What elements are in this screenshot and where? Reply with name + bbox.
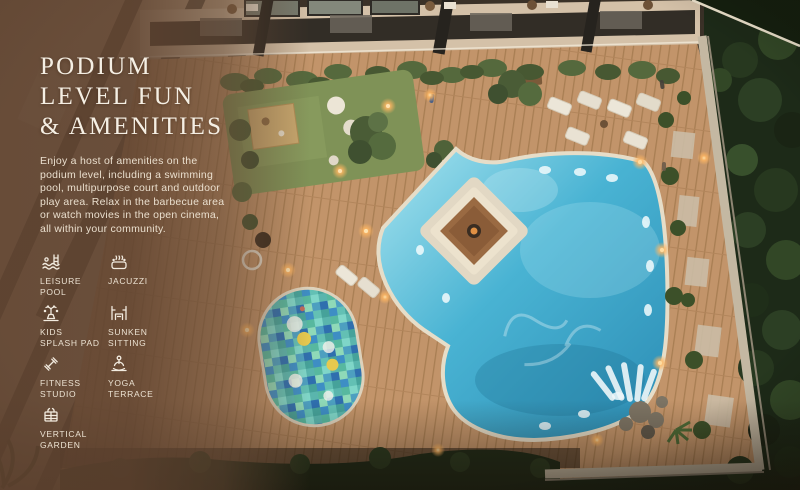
amenity-sunken-sitting: SUNKEN SITTING — [108, 302, 176, 349]
amenity-label: LEISURE POOL — [40, 276, 100, 298]
amenity-label: JACUZZI — [108, 276, 168, 287]
sunken-sitting-icon — [108, 302, 130, 324]
amenity-label: KIDS SPLASH PAD — [40, 327, 100, 349]
yoga-terrace-icon — [108, 353, 130, 375]
hero-content: PODIUM LEVEL FUN & AMENITIES Enjoy a hos… — [40, 52, 260, 451]
amenity-label: YOGA TERRACE — [108, 378, 168, 400]
kids-splash-pad-icon — [40, 302, 62, 324]
title-line-3: & AMENITIES — [40, 112, 260, 142]
amenity-jacuzzi: JACUZZI — [108, 251, 176, 298]
amenity-label: VERTICAL GARDEN — [40, 429, 100, 451]
page-title: PODIUM LEVEL FUN & AMENITIES — [40, 52, 260, 142]
amenity-label: SUNKEN SITTING — [108, 327, 168, 349]
title-line-1: PODIUM — [40, 52, 260, 82]
amenity-label: FITNESS STUDIO — [40, 378, 100, 400]
hero-description: Enjoy a host of amenities on the podium … — [40, 155, 225, 236]
amenity-fitness-studio: FITNESS STUDIO — [40, 353, 108, 400]
fitness-studio-icon — [40, 353, 62, 375]
vertical-garden-icon — [40, 404, 62, 426]
amenities-grid: LEISURE POOL JACUZZI — [40, 251, 260, 451]
amenity-yoga-terrace: YOGA TERRACE — [108, 353, 176, 400]
jacuzzi-icon — [108, 251, 130, 273]
amenity-kids-splash-pad: KIDS SPLASH PAD — [40, 302, 108, 349]
amenity-vertical-garden: VERTICAL GARDEN — [40, 404, 108, 451]
amenity-leisure-pool: LEISURE POOL — [40, 251, 108, 298]
leisure-pool-icon — [40, 251, 62, 273]
podium-amenities-page: PODIUM LEVEL FUN & AMENITIES Enjoy a hos… — [0, 0, 800, 490]
title-line-2: LEVEL FUN — [40, 82, 260, 112]
